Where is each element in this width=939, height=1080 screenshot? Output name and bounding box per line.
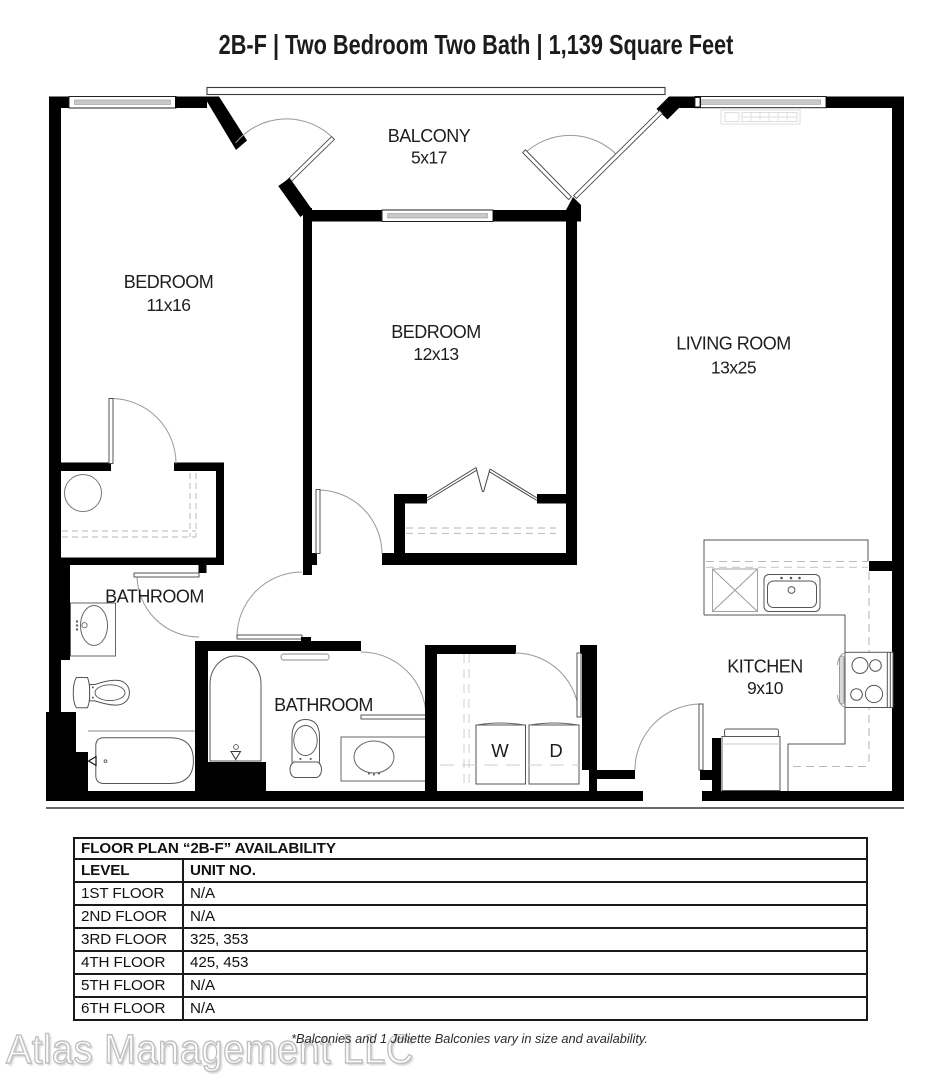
svg-text:11x16: 11x16 <box>147 295 191 315</box>
svg-text:D: D <box>549 740 562 761</box>
svg-text:13x25: 13x25 <box>711 358 756 378</box>
svg-text:BATHROOM: BATHROOM <box>105 587 204 607</box>
svg-text:BALCONY: BALCONY <box>388 126 471 146</box>
svg-text:BEDROOM: BEDROOM <box>391 322 481 342</box>
svg-text:BEDROOM: BEDROOM <box>124 272 214 292</box>
svg-text:W: W <box>491 740 509 761</box>
svg-text:12x13: 12x13 <box>413 344 458 364</box>
svg-text:BATHROOM: BATHROOM <box>274 695 373 715</box>
svg-text:KITCHEN: KITCHEN <box>727 657 803 677</box>
svg-text:5x17: 5x17 <box>411 148 447 168</box>
svg-text:LIVING ROOM: LIVING ROOM <box>676 334 791 354</box>
svg-text:9x10: 9x10 <box>747 678 784 698</box>
